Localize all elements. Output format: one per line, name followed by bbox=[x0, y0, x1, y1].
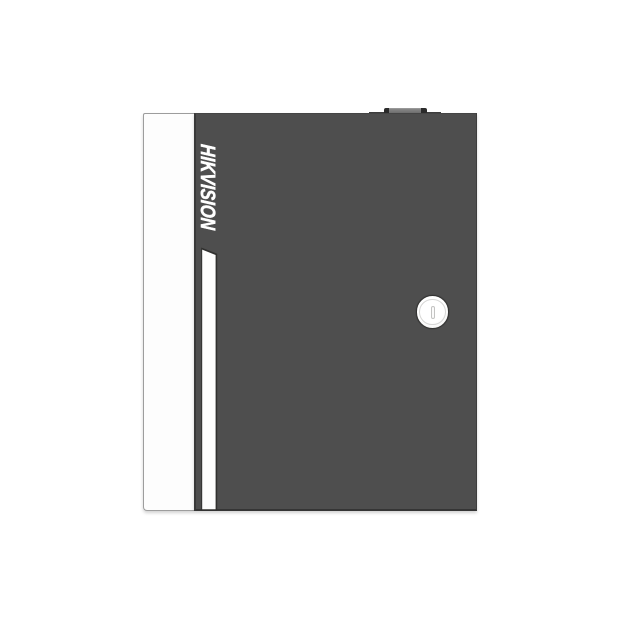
svg-text:HIKVISION: HIKVISION bbox=[196, 143, 219, 231]
